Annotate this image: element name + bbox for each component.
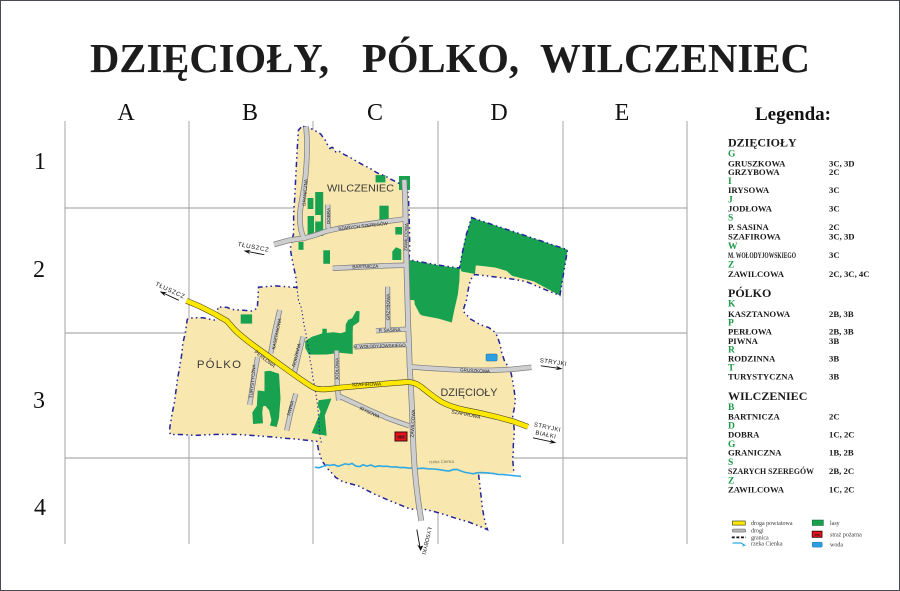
svg-text:straż pożarna: straż pożarna: [830, 532, 862, 538]
svg-text:lasy: lasy: [830, 521, 840, 527]
svg-text:1C, 2C: 1C, 2C: [829, 430, 855, 440]
svg-text:998: 998: [815, 533, 820, 537]
svg-text:3B: 3B: [829, 354, 839, 364]
svg-text:DZIĘCIOŁY,: DZIĘCIOŁY,: [90, 35, 329, 81]
svg-text:JODŁOWA: JODŁOWA: [728, 204, 773, 214]
svg-text:K: K: [728, 300, 736, 310]
svg-text:rzeka Cienka: rzeka Cienka: [429, 459, 455, 464]
svg-text:3B: 3B: [829, 336, 839, 346]
svg-text:GRZYBOWA: GRZYBOWA: [728, 167, 780, 177]
svg-text:TURYSTYCZNA: TURYSTYCZNA: [728, 372, 795, 382]
svg-text:PÓLKO,: PÓLKO,: [362, 35, 519, 81]
svg-text:DZIĘCIOŁY: DZIĘCIOŁY: [441, 387, 498, 399]
svg-text:2B, 3B: 2B, 3B: [829, 327, 854, 337]
svg-text:1: 1: [34, 149, 46, 175]
svg-text:P. SASINA: P. SASINA: [728, 222, 769, 232]
svg-text:ZAWILCOWA: ZAWILCOWA: [403, 222, 409, 251]
svg-text:BARTNICZA: BARTNICZA: [352, 264, 379, 269]
svg-text:Legenda:: Legenda:: [755, 104, 831, 125]
svg-text:PÓLKO: PÓLKO: [197, 358, 242, 371]
svg-text:4: 4: [34, 495, 46, 521]
svg-text:1C, 2C: 1C, 2C: [829, 485, 855, 495]
svg-text:3C: 3C: [829, 250, 840, 260]
svg-text:GRZYBOWA: GRZYBOWA: [386, 293, 391, 321]
svg-text:ZAWILCOWA: ZAWILCOWA: [728, 485, 785, 495]
svg-text:PIWNA: PIWNA: [728, 336, 759, 346]
svg-text:JODŁOWA: JODŁOWA: [335, 357, 340, 380]
svg-text:2B, 3B: 2B, 3B: [829, 309, 854, 319]
svg-text:P. SASINA: P. SASINA: [379, 327, 402, 333]
svg-text:BARTNICZA: BARTNICZA: [728, 412, 781, 422]
svg-text:2C: 2C: [829, 412, 840, 422]
svg-text:M. WOŁODYJOWSKIEGO: M. WOŁODYJOWSKIEGO: [728, 250, 796, 260]
svg-text:998: 998: [397, 435, 405, 440]
svg-text:2C: 2C: [829, 167, 840, 177]
svg-text:PÓLKO: PÓLKO: [728, 286, 771, 300]
svg-text:3B: 3B: [829, 372, 839, 382]
svg-text:WILCZENIEC: WILCZENIEC: [540, 35, 810, 81]
svg-text:2B, 2C: 2B, 2C: [829, 466, 854, 476]
svg-text:3C: 3C: [829, 185, 840, 195]
svg-text:PERŁOWA: PERŁOWA: [728, 327, 773, 337]
svg-text:drogi: drogi: [751, 528, 764, 534]
svg-text:D: D: [490, 100, 507, 126]
svg-text:2C: 2C: [829, 222, 840, 232]
svg-text:SZAFIROWA: SZAFIROWA: [728, 232, 781, 242]
svg-text:B: B: [242, 100, 258, 126]
svg-text:woda: woda: [830, 542, 843, 548]
svg-text:3C, 3D: 3C, 3D: [829, 232, 855, 242]
svg-text:3C: 3C: [829, 204, 840, 214]
svg-text:IRYSOWA: IRYSOWA: [728, 185, 770, 195]
svg-text:1B, 2B: 1B, 2B: [829, 448, 854, 458]
svg-text:3: 3: [33, 388, 45, 414]
svg-text:SZARYCH SZEREGÓW: SZARYCH SZEREGÓW: [728, 466, 814, 476]
svg-text:RODZINNA: RODZINNA: [728, 354, 776, 364]
svg-text:ZAWILCOWA: ZAWILCOWA: [728, 269, 785, 279]
svg-text:rzeka Cienka: rzeka Cienka: [751, 541, 783, 547]
svg-text:WILCZENIEC: WILCZENIEC: [327, 184, 395, 195]
svg-text:2C, 3C, 4C: 2C, 3C, 4C: [829, 269, 870, 279]
svg-text:WILCZENIEC: WILCZENIEC: [728, 389, 807, 403]
svg-text:E: E: [615, 100, 630, 126]
svg-text:KASZTANOWA: KASZTANOWA: [728, 309, 791, 319]
svg-text:GRANICZNA: GRANICZNA: [728, 448, 782, 458]
svg-text:droga powiatowa: droga powiatowa: [751, 521, 793, 527]
svg-text:A: A: [117, 100, 135, 126]
svg-text:DZIĘCIOŁY: DZIĘCIOŁY: [728, 136, 797, 150]
svg-text:2: 2: [33, 257, 45, 283]
svg-text:DOBRA: DOBRA: [728, 430, 760, 440]
svg-text:C: C: [367, 100, 383, 126]
svg-text:DOBRA: DOBRA: [326, 207, 331, 224]
svg-text:SZAFIROWA: SZAFIROWA: [352, 381, 382, 388]
